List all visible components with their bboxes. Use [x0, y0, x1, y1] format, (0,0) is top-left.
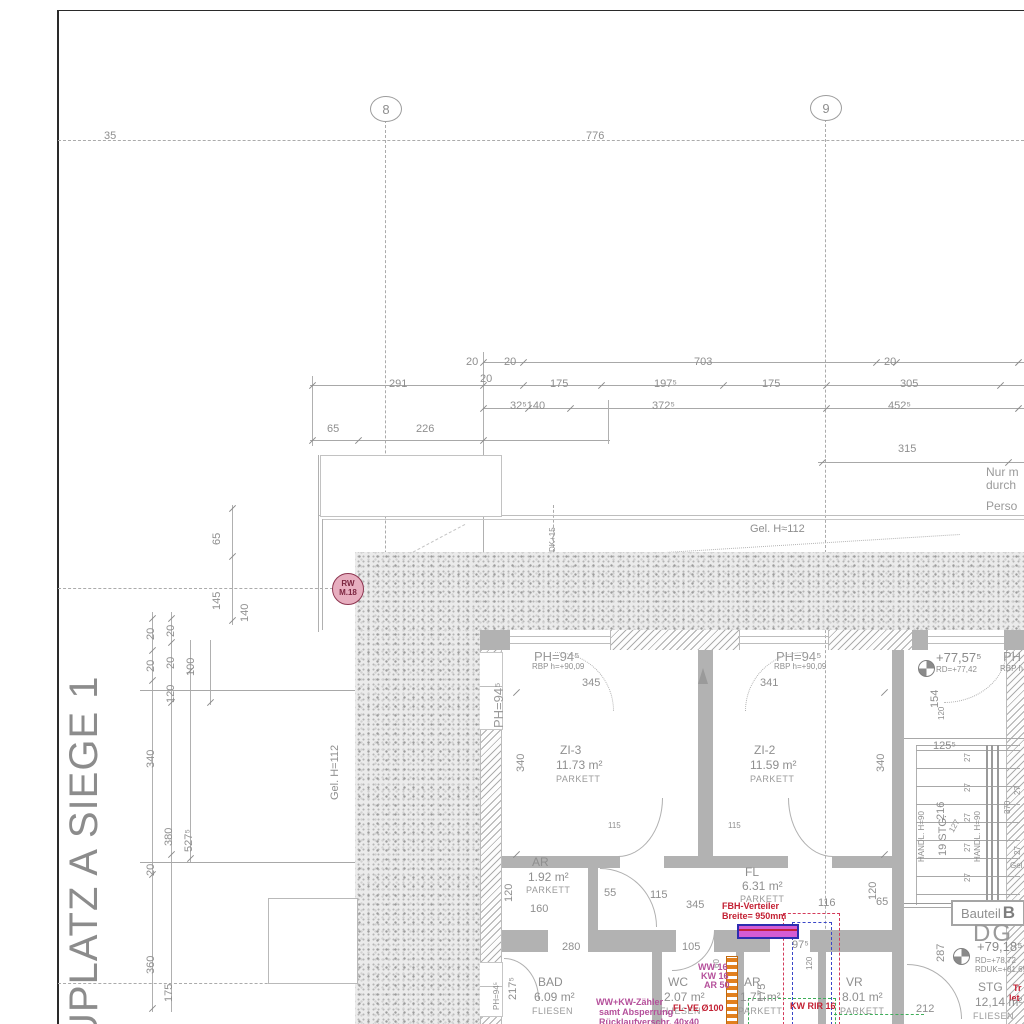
handrail-label: HANDL. H=90	[918, 811, 926, 862]
dim-label: 380	[164, 828, 175, 846]
room-name: STG	[978, 981, 1003, 993]
dim-label: PH	[1003, 650, 1021, 663]
dim-label: PARKETT	[526, 886, 570, 895]
fbh-label: Breite= 950mm	[722, 912, 786, 921]
room-name: WC	[668, 976, 688, 988]
room-material: PARKETT	[556, 775, 600, 784]
margin-note: durch	[986, 479, 1016, 491]
room-area: 8.01 m²	[842, 991, 883, 1003]
dim-label: 115	[650, 890, 668, 901]
dim-label: 32⁵140	[510, 401, 545, 412]
room-area: 6.31 m²	[742, 880, 783, 892]
dim-label: RD=+78,72	[975, 957, 1016, 965]
dim-label: 175	[550, 379, 568, 390]
room-name: ZI-2	[754, 744, 775, 756]
dim-label: 160	[530, 904, 548, 915]
dim-label: 27	[964, 753, 972, 762]
room-area: 1.71 m²	[740, 991, 781, 1003]
dim-label: 20	[166, 625, 177, 637]
dim-label: 120	[938, 707, 946, 720]
dim-label: 217⁵	[508, 977, 519, 1000]
dim-label: 27	[1014, 786, 1022, 795]
pipe-label: AR 50	[704, 981, 730, 990]
dim-label: 291	[389, 379, 407, 390]
sheet-border-top	[57, 10, 1024, 11]
dim-label: 287	[936, 944, 947, 962]
dim-label: 120	[806, 957, 814, 970]
grid-bubble-9: 9	[810, 95, 842, 121]
margin-note: Nur m	[986, 466, 1019, 478]
datum-symbol	[953, 948, 970, 965]
dim-label: 20	[166, 657, 177, 669]
dim-label: 125⁵	[933, 741, 956, 752]
rw-pipe-symbol: RW M.18	[332, 573, 364, 605]
room-name: BAD	[538, 976, 563, 988]
dim-label: DK+15	[549, 527, 557, 552]
tick-mark	[881, 689, 888, 696]
dim-label: 527⁵	[184, 829, 195, 852]
dim-label: 372⁵	[652, 401, 675, 412]
dim-label: 116	[818, 898, 836, 909]
dim-label: 20	[480, 374, 492, 385]
dim-label: PARKETT	[738, 1007, 782, 1016]
dim-label: 154	[930, 690, 941, 708]
riser-shaft	[726, 956, 738, 1024]
floor-plan-canvas: 8 9	[0, 0, 1024, 1024]
dim-label: RD=+77,42	[936, 666, 977, 674]
dim-label: 27	[964, 783, 972, 792]
dim-label: 340	[516, 754, 527, 772]
sheet-border-left	[57, 10, 59, 1024]
room-area: 12,14 m²	[975, 996, 1022, 1008]
terrain-label: Gel. H=112	[330, 745, 341, 800]
dim-label: 105	[682, 942, 700, 953]
dim-label: 305	[900, 379, 918, 390]
fbh-distributor	[737, 924, 799, 939]
dim-label: 20	[884, 357, 896, 368]
dim-label: 315	[898, 444, 916, 455]
room-name: AR	[744, 976, 761, 988]
grid-bubble-8: 8	[370, 96, 402, 122]
grid-dim: 35	[104, 131, 116, 142]
dim-label: 120	[504, 884, 515, 902]
dim-label: 97⁵	[792, 940, 809, 951]
dim-label: 115	[608, 822, 621, 830]
dim-label: 145	[212, 592, 223, 610]
dim-label: RBP h=+90,09	[532, 663, 584, 671]
dim-label: 360	[146, 956, 157, 974]
room-area: 2.07 m²	[664, 991, 705, 1003]
pipe-label: KW RIR 16	[790, 1002, 836, 1011]
dim-label: 20	[146, 628, 157, 640]
dim-label: 120	[166, 685, 177, 703]
terrain-label: Gel. H≈112	[750, 524, 805, 535]
dim-label: 20	[466, 357, 478, 368]
room-area: 1.92 m²	[528, 871, 569, 883]
dim-label: PH=94⁵	[493, 982, 501, 1010]
dim-label: Gel	[1010, 862, 1022, 870]
dim-label: 703	[694, 357, 712, 368]
dim-label: 226	[416, 424, 434, 435]
level-label: +77,57⁵	[936, 651, 982, 664]
dim-label: 65	[212, 533, 223, 545]
dim-label: 115	[728, 822, 741, 830]
wall-recess	[268, 898, 358, 984]
dim-label: 27	[1014, 846, 1022, 855]
grid-dim: 776	[586, 131, 604, 142]
room-material: PARKETT	[750, 775, 794, 784]
pipe-label: Rücklaufverschr. 40x40	[599, 1018, 699, 1024]
dim-label: 345	[582, 678, 600, 689]
dim-label: 27	[964, 813, 972, 822]
room-name: FL	[745, 866, 759, 878]
dim-label: 197⁵	[654, 379, 677, 390]
dim-label: 340	[876, 754, 887, 772]
dim-label: RBP h	[1000, 665, 1023, 673]
dim-label: 55	[604, 888, 616, 899]
pipe-label: samt Absperrung	[599, 1008, 673, 1017]
dim-label: 452⁵	[888, 401, 911, 412]
dim-label: 20	[146, 864, 157, 876]
dim-label: 175	[164, 984, 175, 1002]
dim-label: 20	[504, 357, 516, 368]
dim-label: 27	[964, 873, 972, 882]
dim-label: 140	[240, 604, 251, 622]
datum-symbol	[918, 660, 935, 677]
dim-label: 65	[327, 424, 339, 435]
dim-label: FLIESEN	[532, 1007, 573, 1016]
room-area: 11.73 m²	[556, 759, 602, 771]
pipe-label: FL-VE Ø100	[673, 1004, 724, 1013]
dim-label: 127	[948, 818, 962, 834]
room-area: 6.09 m²	[534, 991, 575, 1003]
pipe-label: WW+KW-Zähler	[596, 998, 663, 1007]
tick-mark	[513, 689, 520, 696]
room-name: VR	[846, 976, 863, 988]
room-name: AR	[532, 856, 549, 868]
dim-label: 340	[146, 750, 157, 768]
room-name: ZI-3	[560, 744, 581, 756]
dim-label: Tr	[1013, 984, 1022, 993]
dim-label: 120	[868, 882, 879, 900]
window-label: PH=94⁵	[492, 683, 505, 729]
dim-label: 27	[964, 843, 972, 852]
dim-label: 370	[1004, 801, 1012, 814]
dim-label: 175	[762, 379, 780, 390]
dim-label: FLIESEN	[973, 1012, 1014, 1021]
sheet-title: UPLATZ A SIEGE 1	[62, 675, 107, 1024]
margin-note: Perso	[986, 500, 1017, 512]
fbh-label: FBH-Verteiler	[722, 902, 779, 911]
dim-label: 280	[562, 942, 580, 953]
stair-label: 19 STG.	[938, 815, 949, 856]
dim-label: PARKETT	[840, 1007, 884, 1016]
room-area: 11.59 m²	[750, 759, 796, 771]
dim-label: RBP h=+90,09	[774, 663, 826, 671]
dim-label: 20	[146, 660, 157, 672]
exterior-wall-band-top	[355, 552, 1024, 630]
level-label: +79,18⁵	[977, 940, 1023, 953]
handrail-label: HANDL. H=90	[974, 811, 982, 862]
dim-label: RDUK=+81,69	[975, 966, 1024, 974]
dim-label: 100	[186, 658, 197, 676]
flow-arrow	[698, 668, 708, 684]
dim-label: 341	[760, 678, 778, 689]
dim-label: 212	[916, 1004, 934, 1015]
exterior-wall-band-left	[355, 630, 480, 1024]
dim-label: 345	[686, 900, 704, 911]
